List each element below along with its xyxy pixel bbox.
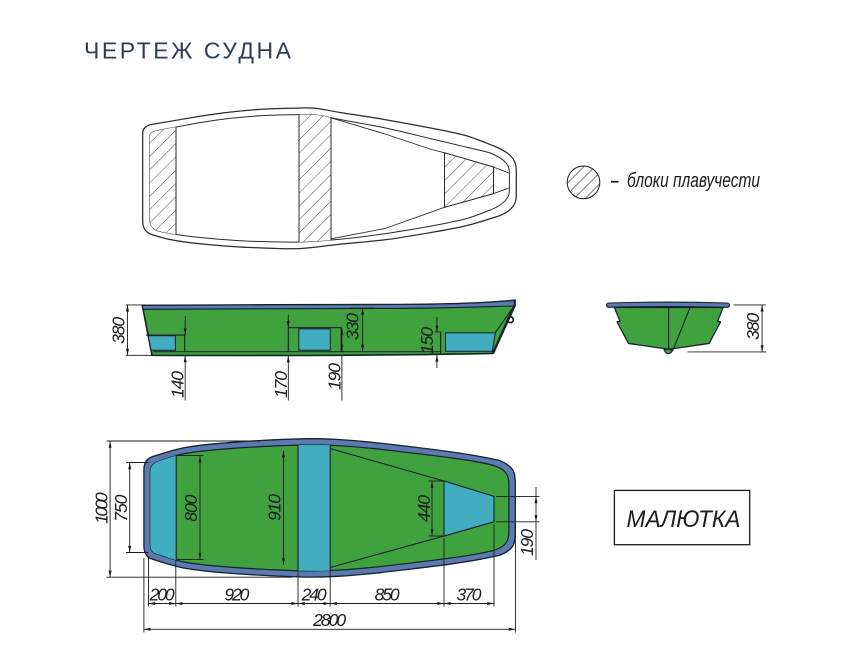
svg-text:910: 910 (265, 494, 285, 521)
svg-text:140: 140 (167, 371, 187, 398)
svg-text:920: 920 (224, 585, 249, 605)
svg-text:ЧЕРТЕЖ СУДНА: ЧЕРТЕЖ СУДНА (84, 38, 294, 64)
svg-text:1000: 1000 (92, 492, 112, 524)
svg-text:380: 380 (109, 317, 129, 344)
svg-text:440: 440 (414, 495, 434, 522)
svg-text:380: 380 (743, 313, 763, 340)
svg-text:850: 850 (375, 585, 400, 605)
svg-text:330: 330 (343, 313, 363, 340)
svg-text:800: 800 (181, 494, 201, 521)
svg-text:370: 370 (457, 585, 482, 605)
svg-text:750: 750 (111, 494, 131, 521)
svg-text:190: 190 (517, 529, 537, 556)
svg-text:170: 170 (271, 371, 291, 398)
svg-text:150: 150 (417, 327, 437, 354)
svg-text:200: 200 (149, 585, 175, 605)
svg-text:190: 190 (325, 363, 345, 390)
svg-text:240: 240 (301, 585, 327, 605)
svg-text:блоки плавучести: блоки плавучести (627, 170, 760, 192)
svg-text:МАЛЮТКА: МАЛЮТКА (627, 506, 741, 533)
svg-text:2800: 2800 (312, 610, 346, 630)
